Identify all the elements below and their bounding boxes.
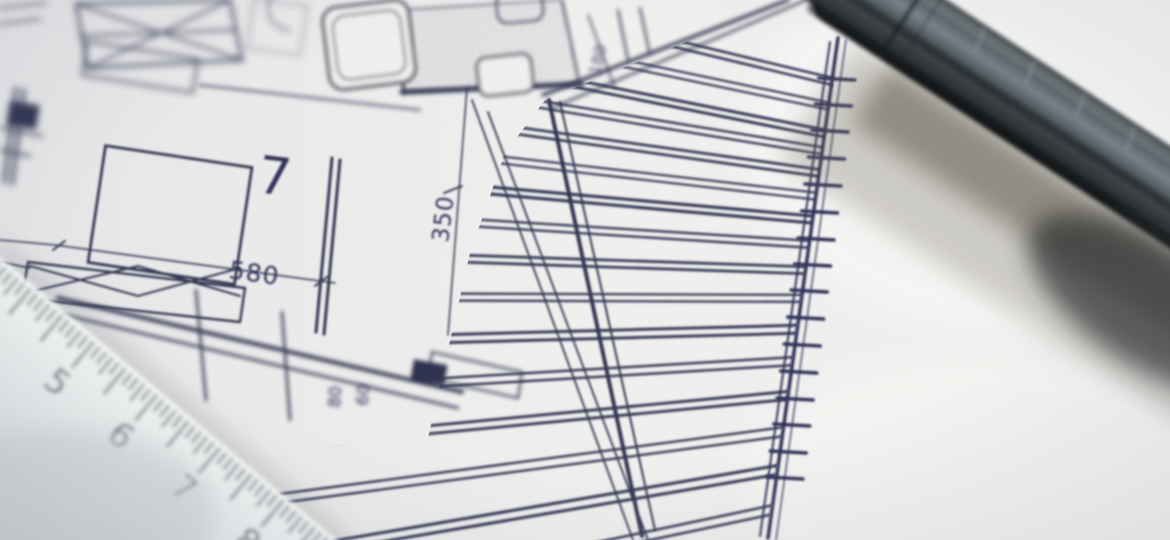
photo-floorplan-scene: 7 580 350 80 60 180 [0,0,1170,540]
vignette-overlay [0,0,1170,540]
floorplan-photo: 7 580 350 80 60 180 [0,0,1170,540]
